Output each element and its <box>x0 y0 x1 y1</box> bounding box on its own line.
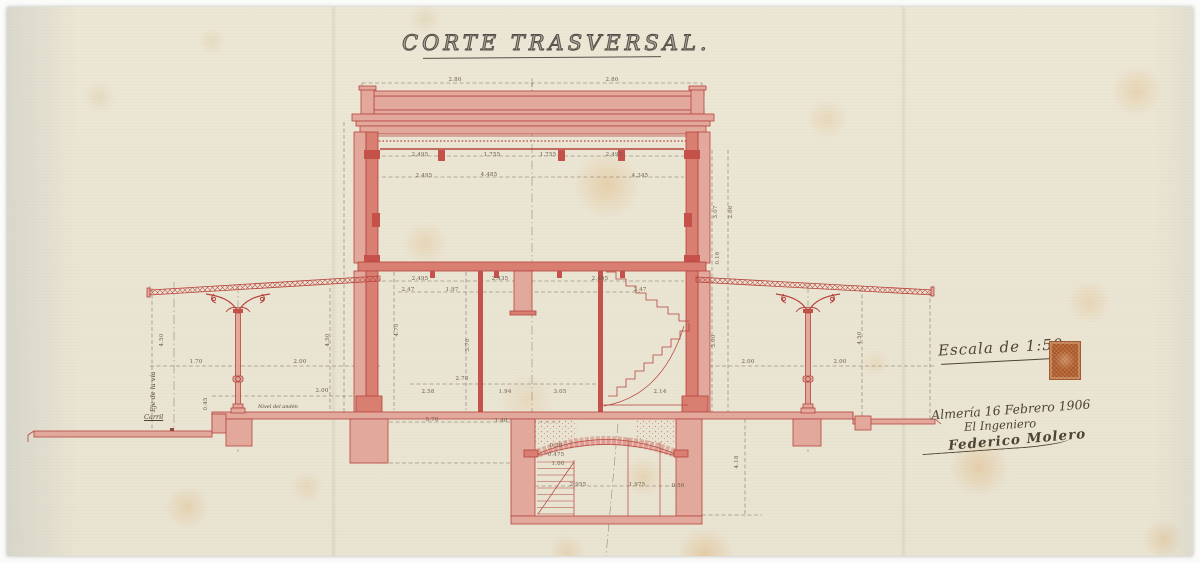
platform-level-label: Nivel del andén <box>258 404 298 410</box>
rail-label: Carril <box>144 413 163 421</box>
revenue-stamp <box>1049 341 1081 380</box>
drawing-title: CORTE TRASVERSAL. <box>402 31 682 55</box>
scanned-drawing-sheet: { "document": { "title": "CORTE TRASVERS… <box>0 0 1200 563</box>
track-axis-label: Eje de la vía <box>149 372 157 412</box>
paper-sheet <box>7 7 1193 556</box>
